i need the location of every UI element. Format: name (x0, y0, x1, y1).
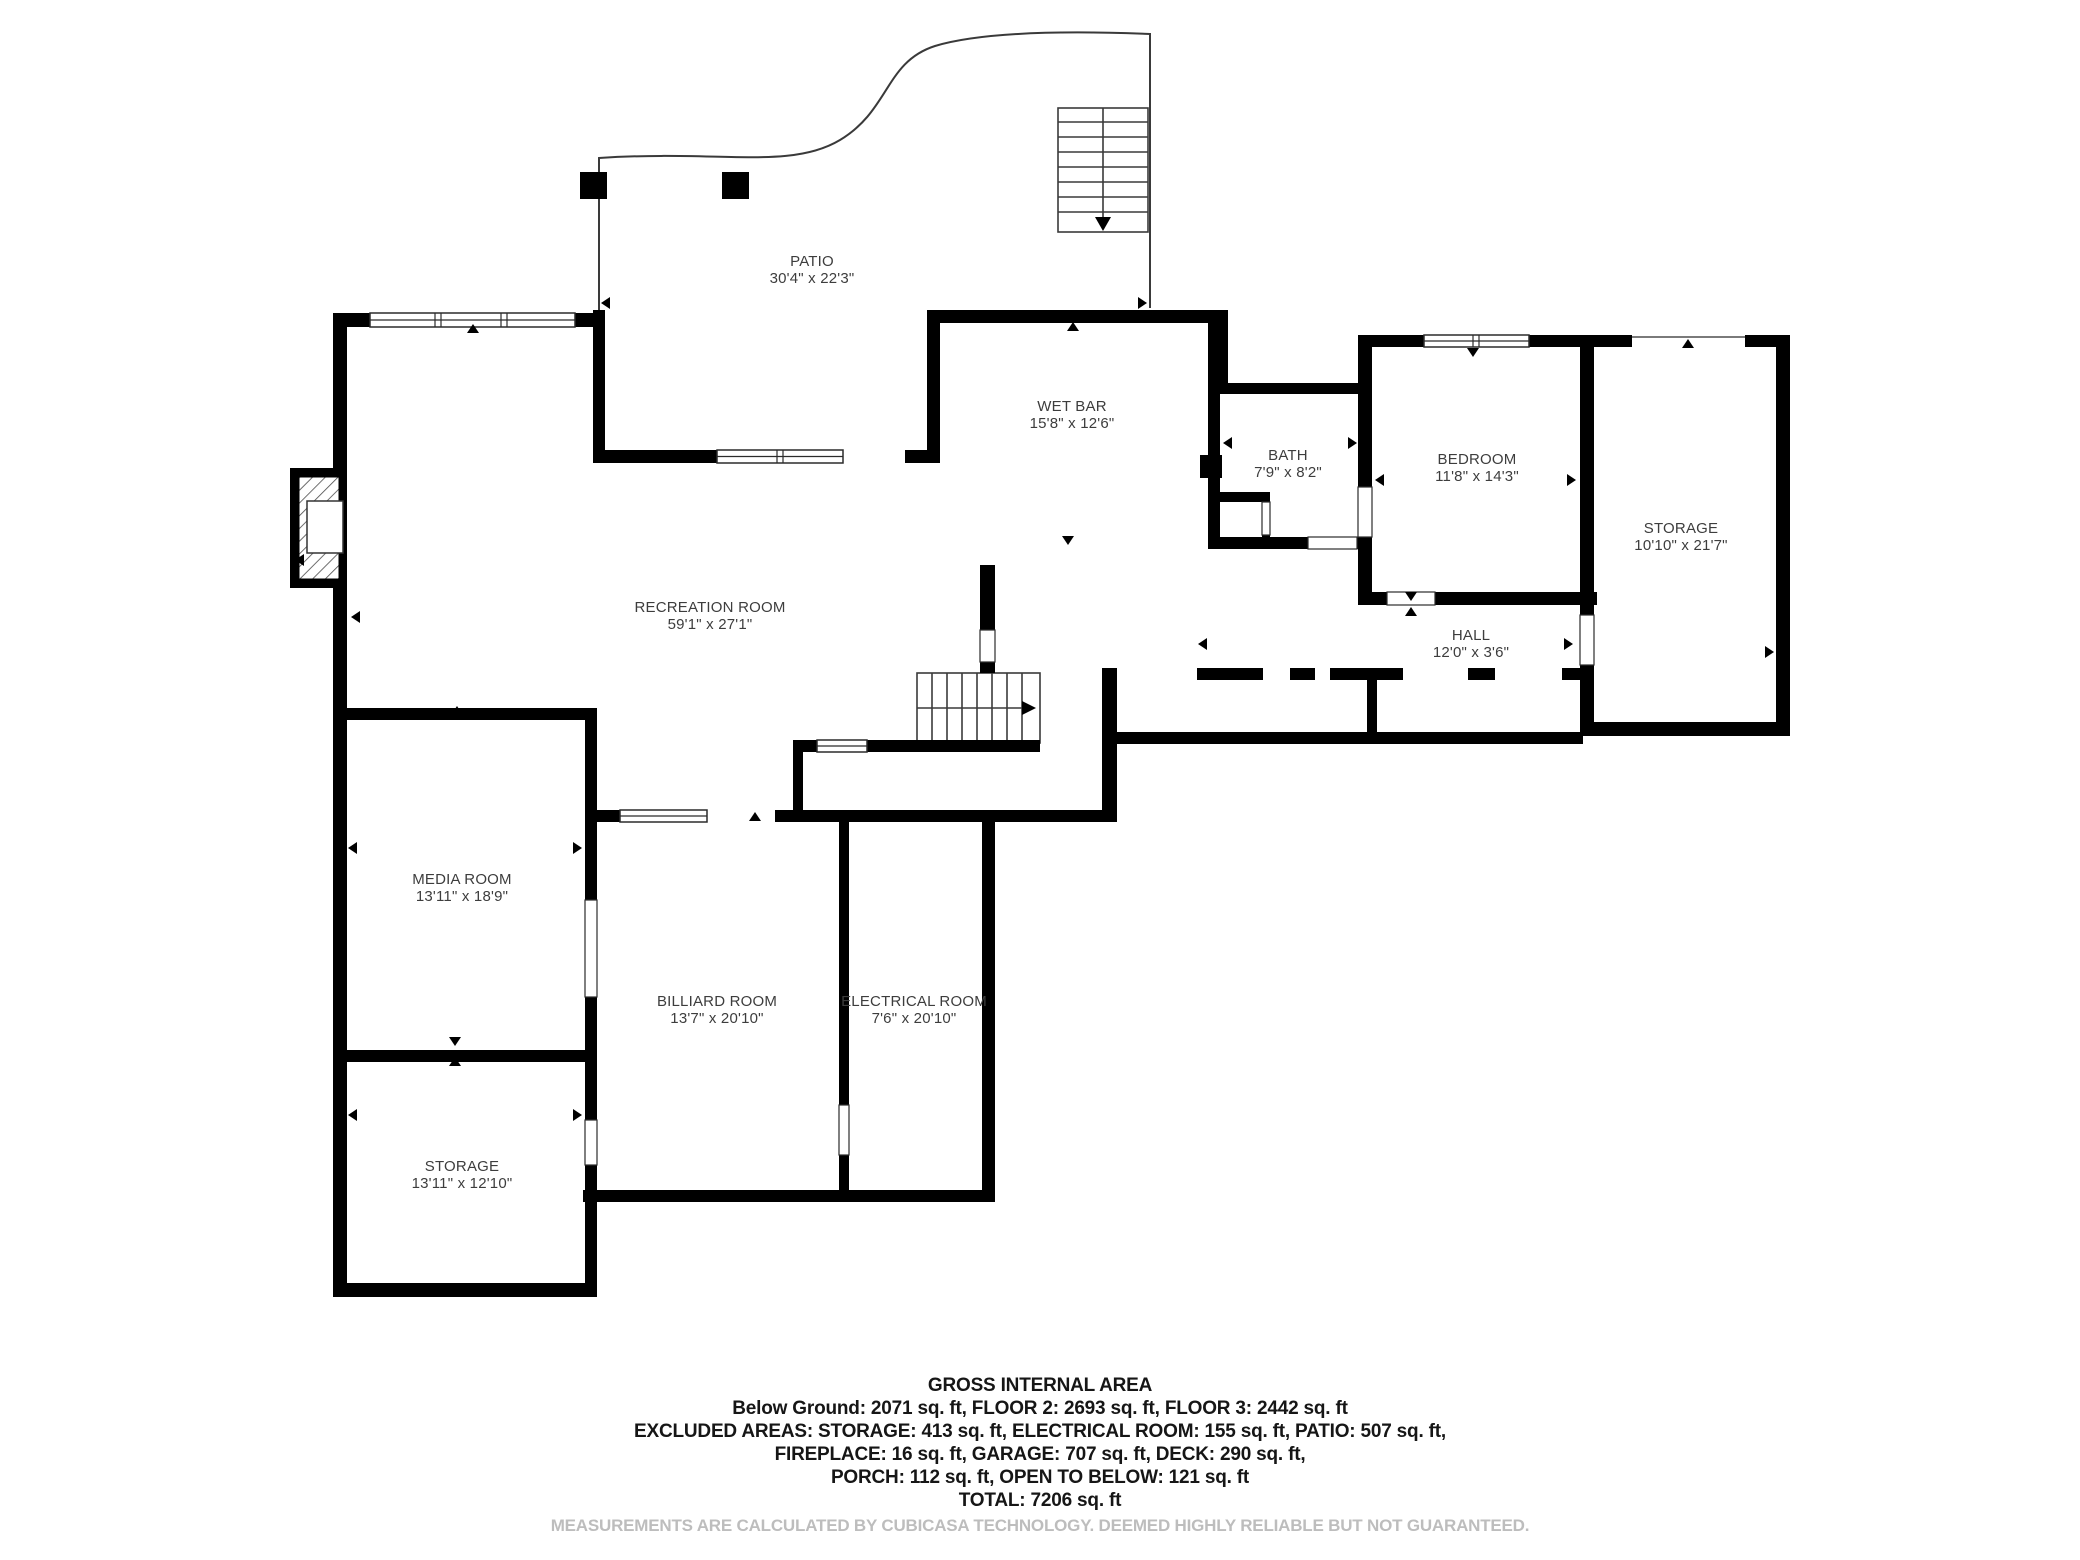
main-staircase (917, 673, 1040, 743)
room-label-patio: PATIO 30'4" x 22'3" (770, 253, 855, 287)
room-label-bath: BATH 7'9" x 8'2" (1254, 447, 1322, 481)
stair-up-arrow (1022, 701, 1036, 715)
room-label-billiard-room: BILLIARD ROOM 13'7" x 20'10" (657, 993, 777, 1027)
area-summary-line: PORCH: 112 sq. ft, OPEN TO BELOW: 121 sq… (0, 1466, 2080, 1489)
room-label-media-room: MEDIA ROOM 13'11" x 18'9" (412, 871, 512, 905)
area-summary-line: EXCLUDED AREAS: STORAGE: 413 sq. ft, ELE… (0, 1420, 2080, 1443)
disclaimer-text: MEASUREMENTS ARE CALCULATED BY CUBICASA … (0, 1514, 2080, 1537)
area-summary-total: TOTAL: 7206 sq. ft (0, 1489, 2080, 1512)
room-label-bedroom: BEDROOM 11'8" x 14'3" (1435, 451, 1519, 485)
room-label-storage-upper: STORAGE 10'10" x 21'7" (1634, 520, 1727, 554)
room-label-hall: HALL 12'0" x 3'6" (1433, 627, 1509, 661)
upper-staircase (1058, 108, 1148, 232)
walls (333, 310, 1790, 1297)
door-openings (585, 487, 1594, 1165)
area-summary-title: GROSS INTERNAL AREA (0, 1374, 2080, 1397)
fireplace (290, 468, 347, 588)
patio-posts (580, 172, 749, 199)
stair-down-arrow (1095, 217, 1111, 231)
room-label-recreation-room: RECREATION ROOM 59'1" x 27'1" (634, 599, 785, 633)
room-label-wet-bar: WET BAR 15'8" x 12'6" (1030, 398, 1115, 432)
area-summary-line: FIREPLACE: 16 sq. ft, GARAGE: 707 sq. ft… (0, 1443, 2080, 1466)
windows (370, 313, 1745, 822)
floor-plan-canvas (0, 0, 2080, 1560)
patio-outline (599, 32, 1150, 310)
area-summary-line: Below Ground: 2071 sq. ft, FLOOR 2: 2693… (0, 1397, 2080, 1420)
room-label-electrical-room: ELECTRICAL ROOM 7'6" x 20'10" (841, 993, 987, 1027)
floor-plan-page: PATIO 30'4" x 22'3" WET BAR 15'8" x 12'6… (0, 0, 2080, 1560)
tick-arrows (295, 297, 1774, 1295)
area-summary: GROSS INTERNAL AREA Below Ground: 2071 s… (0, 1374, 2080, 1537)
room-label-storage-lower: STORAGE 13'11" x 12'10" (412, 1158, 513, 1192)
